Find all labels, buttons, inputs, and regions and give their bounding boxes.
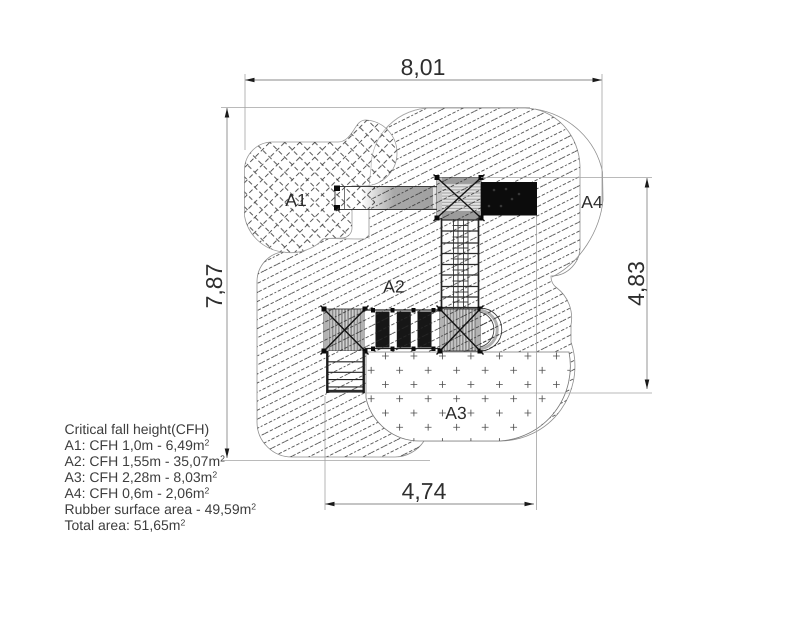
svg-text:4,74: 4,74 [402,478,447,504]
svg-text:A2: A2 [383,277,404,297]
svg-text:A3: A3 [445,403,466,423]
svg-text:8,01: 8,01 [401,54,446,80]
svg-text:Rubber surface area - 49,59m2: Rubber surface area - 49,59m2 [65,501,257,517]
svg-text:A1: CFH 1,0m - 6,49m2: A1: CFH 1,0m - 6,49m2 [65,437,210,453]
svg-text:A2: CFH 1,55m - 35,07m2: A2: CFH 1,55m - 35,07m2 [65,453,226,469]
svg-text:A4: CFH 0,6m - 2,06m2: A4: CFH 0,6m - 2,06m2 [65,485,210,501]
svg-text:Total area: 51,65m2: Total area: 51,65m2 [65,517,186,533]
svg-text:4,83: 4,83 [623,261,649,306]
svg-text:A1: A1 [285,190,306,210]
svg-text:7,87: 7,87 [201,264,227,309]
svg-text:A4: A4 [581,192,603,212]
svg-text:A3: CFH 2,28m - 8,03m2: A3: CFH 2,28m - 8,03m2 [65,469,218,485]
svg-text:Critical fall height(CFH): Critical fall height(CFH) [65,421,210,437]
